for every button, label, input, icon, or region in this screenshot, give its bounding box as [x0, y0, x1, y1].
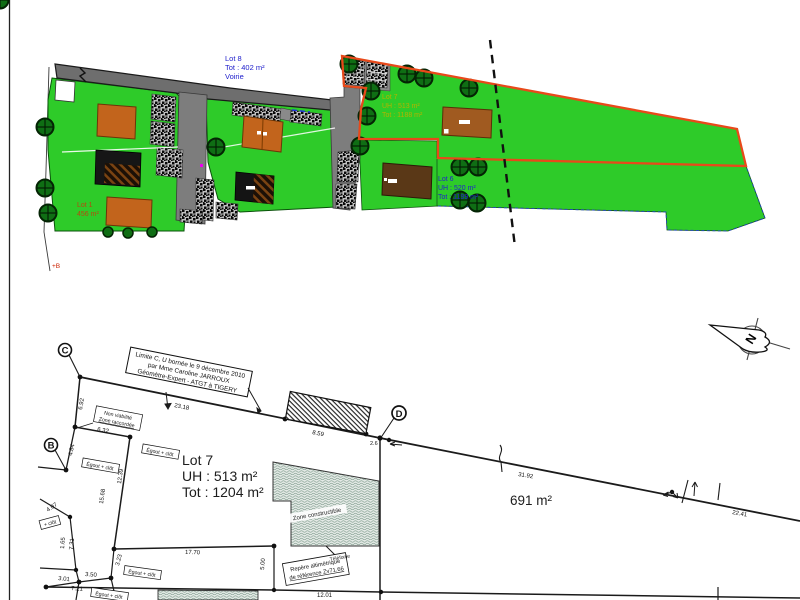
svg-text:Lot 1: Lot 1 — [77, 202, 93, 209]
svg-text:12.01: 12.01 — [317, 593, 333, 599]
svg-text:Lot 7: Lot 7 — [382, 94, 398, 101]
svg-text:D: D — [396, 409, 403, 420]
svg-text:B: B — [48, 441, 55, 452]
svg-text:+B: +B — [52, 263, 60, 270]
svg-text:1.65: 1.65 — [60, 536, 67, 549]
svg-text:Tot : 1199 m²: Tot : 1199 m² — [438, 194, 479, 201]
svg-text:Tot : 1204 m²: Tot : 1204 m² — [182, 484, 264, 500]
svg-text:Lot 7: Lot 7 — [182, 452, 213, 468]
svg-text:Lot 8: Lot 8 — [225, 54, 242, 63]
svg-text:Lot 6: Lot 6 — [438, 176, 454, 183]
svg-text:17.70: 17.70 — [185, 550, 201, 556]
svg-text:C: C — [62, 346, 69, 357]
svg-text:7.31: 7.31 — [69, 537, 76, 550]
svg-text:Tot : 1188 m²: Tot : 1188 m² — [382, 112, 423, 119]
svg-text:Voirie: Voirie — [225, 72, 244, 81]
svg-text:Tot : 402 m²: Tot : 402 m² — [225, 63, 265, 72]
svg-text:UH : 513 m²: UH : 513 m² — [382, 103, 420, 110]
svg-text:456 m²: 456 m² — [77, 211, 99, 218]
svg-text:3.50: 3.50 — [85, 572, 98, 579]
svg-text:2.6: 2.6 — [370, 441, 378, 447]
svg-text:7.21: 7.21 — [71, 586, 84, 593]
svg-text:5.00: 5.00 — [260, 557, 267, 570]
svg-text:UH : 520 m²: UH : 520 m² — [438, 185, 476, 192]
svg-text:3.01: 3.01 — [58, 576, 71, 583]
svg-text:UH : 513 m²: UH : 513 m² — [182, 468, 258, 484]
svg-text:691 m²: 691 m² — [510, 493, 553, 508]
